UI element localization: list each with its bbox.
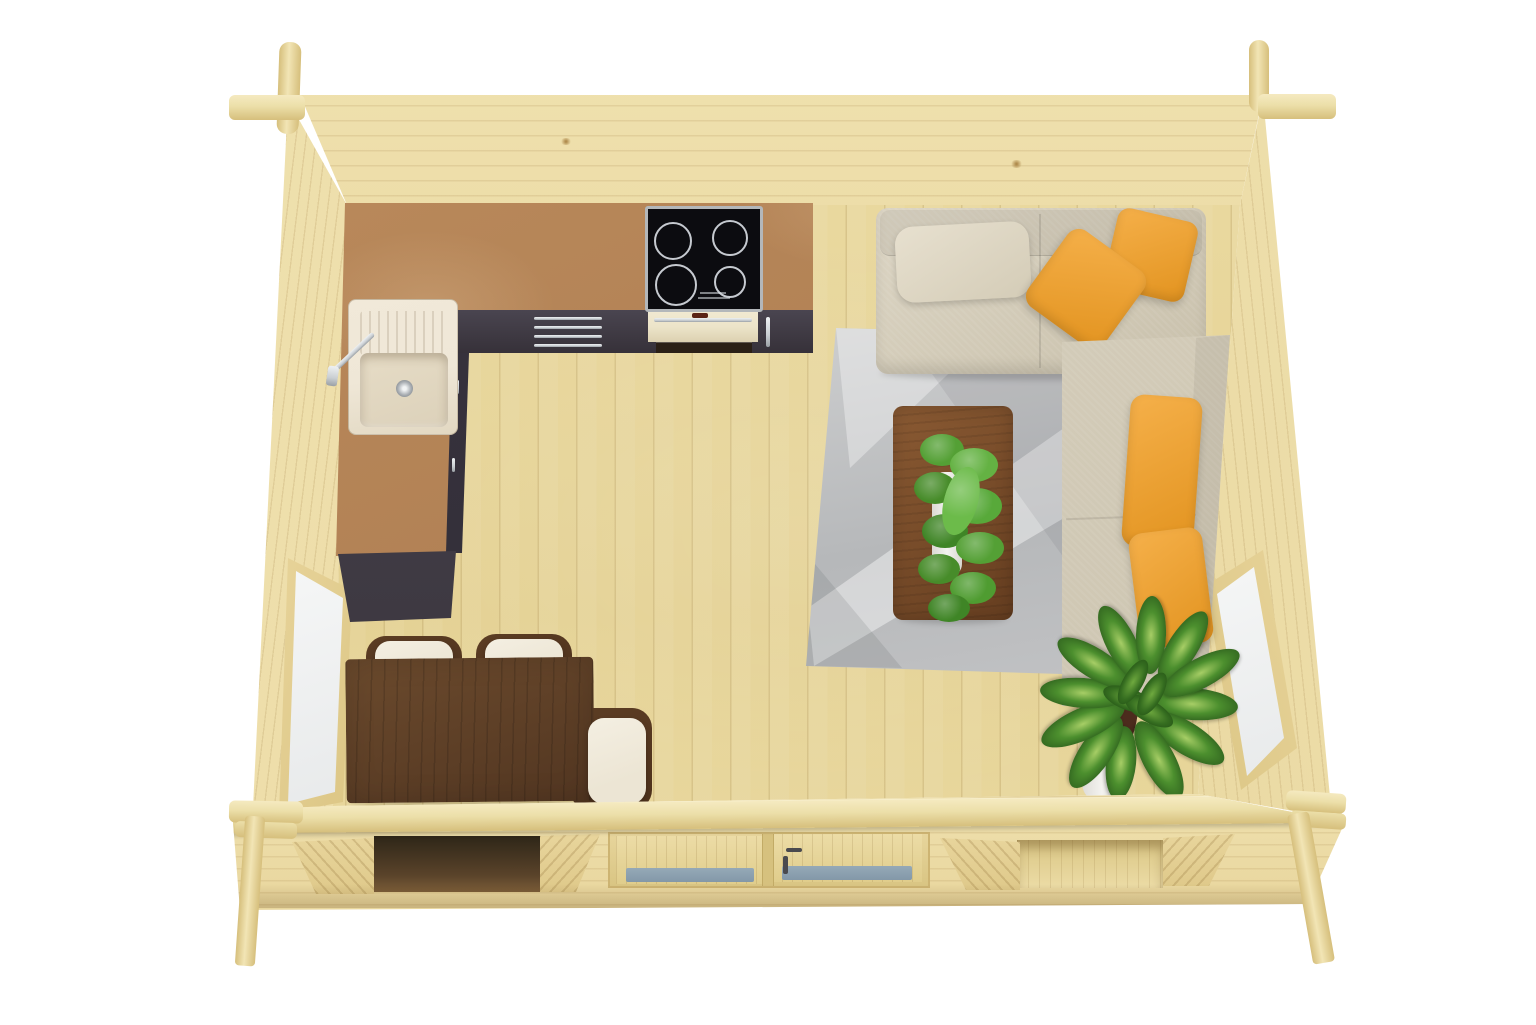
hob-control-marks bbox=[700, 292, 726, 294]
left-window bbox=[279, 556, 353, 816]
door-handle bbox=[786, 848, 802, 852]
front-wall-under-shadow bbox=[236, 884, 1336, 908]
front-window-right-opening bbox=[1017, 840, 1163, 888]
hob-control-marks bbox=[698, 297, 730, 299]
door-glass-right bbox=[782, 866, 912, 880]
door-glass-left bbox=[626, 868, 754, 882]
dining-chair-cushion bbox=[588, 718, 646, 804]
hob-burner bbox=[654, 222, 692, 260]
front-wall-reveal bbox=[940, 836, 1020, 890]
kitchen-cabinet-front bbox=[456, 310, 813, 353]
front-wall-reveal bbox=[1163, 834, 1235, 886]
fern-plant bbox=[914, 426, 1012, 628]
wood-knot bbox=[1010, 160, 1023, 168]
cabinet-handle bbox=[452, 458, 455, 472]
hob-burner bbox=[655, 264, 697, 306]
corner-log-top-left-horizontal bbox=[229, 95, 305, 120]
cabinet-handle bbox=[766, 317, 770, 347]
sofa-lumbar-pillow bbox=[894, 221, 1032, 304]
oven-window bbox=[656, 342, 752, 353]
wood-knot bbox=[560, 138, 572, 145]
cabin-render bbox=[0, 0, 1536, 1025]
dining-table bbox=[345, 657, 594, 804]
door-handle bbox=[783, 856, 788, 874]
drawer-handle bbox=[534, 326, 602, 329]
drawer-handle bbox=[534, 317, 602, 320]
drawer-handle bbox=[534, 344, 602, 347]
fern-leaf bbox=[956, 532, 1004, 564]
oven-handle bbox=[654, 318, 752, 322]
corner-log-top-left-vertical bbox=[276, 42, 301, 135]
left-window-glass bbox=[279, 556, 353, 816]
hob-burner bbox=[712, 220, 748, 256]
oven-knob bbox=[692, 313, 708, 318]
sink-drain bbox=[396, 380, 413, 397]
fern-leaf bbox=[928, 594, 970, 622]
door-divider bbox=[762, 834, 774, 886]
drawer-handle bbox=[534, 335, 602, 338]
corner-log-top-right-horizontal bbox=[1258, 94, 1336, 119]
